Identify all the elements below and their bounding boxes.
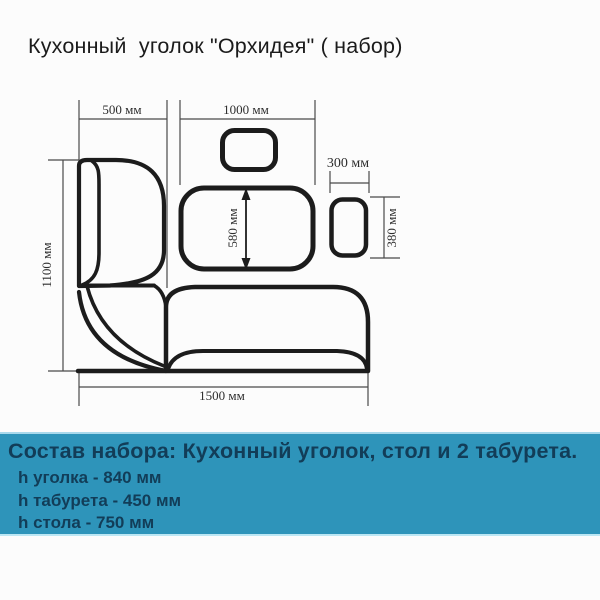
height-table-line: h стола - 750 мм [18, 512, 600, 535]
table-outline [181, 188, 313, 269]
set-contents-band: Состав набора: Кухонный уголок, стол и 2… [0, 432, 600, 536]
height-stool-line: h табурета - 450 мм [18, 490, 600, 513]
furniture-outlines [78, 131, 368, 372]
label-1500mm: 1500 мм [199, 388, 245, 403]
stool-right-outline [332, 200, 367, 256]
label-1100mm: 1100 мм [39, 242, 54, 287]
table-depth-arrow [242, 188, 251, 270]
label-300mm: 300 мм [327, 156, 369, 171]
set-contents-heading: Состав набора: Кухонный уголок, стол и 2… [8, 439, 600, 464]
label-580mm: 580 мм [225, 208, 240, 247]
label-380mm: 380 мм [384, 208, 399, 247]
corner-bench-bottom-backrest [166, 287, 368, 370]
corner-bench-bottom-seat-line [168, 351, 367, 369]
corner-bench-left-outline [79, 160, 164, 286]
furniture-dimension-diagram: 500 мм 1000 мм 300 мм 380 мм 580 мм 1100… [0, 0, 600, 432]
stool-top-outline [223, 131, 276, 170]
corner-bench-joint-inner-curve [87, 286, 164, 366]
dimension-labels: 500 мм 1000 мм 300 мм 380 мм 580 мм 1100… [39, 102, 399, 403]
label-500mm: 500 мм [102, 102, 141, 117]
corner-bench-left-backrest-line [82, 161, 99, 285]
height-bench-line: h уголка - 840 мм [18, 467, 600, 490]
label-1000mm: 1000 мм [223, 102, 269, 117]
